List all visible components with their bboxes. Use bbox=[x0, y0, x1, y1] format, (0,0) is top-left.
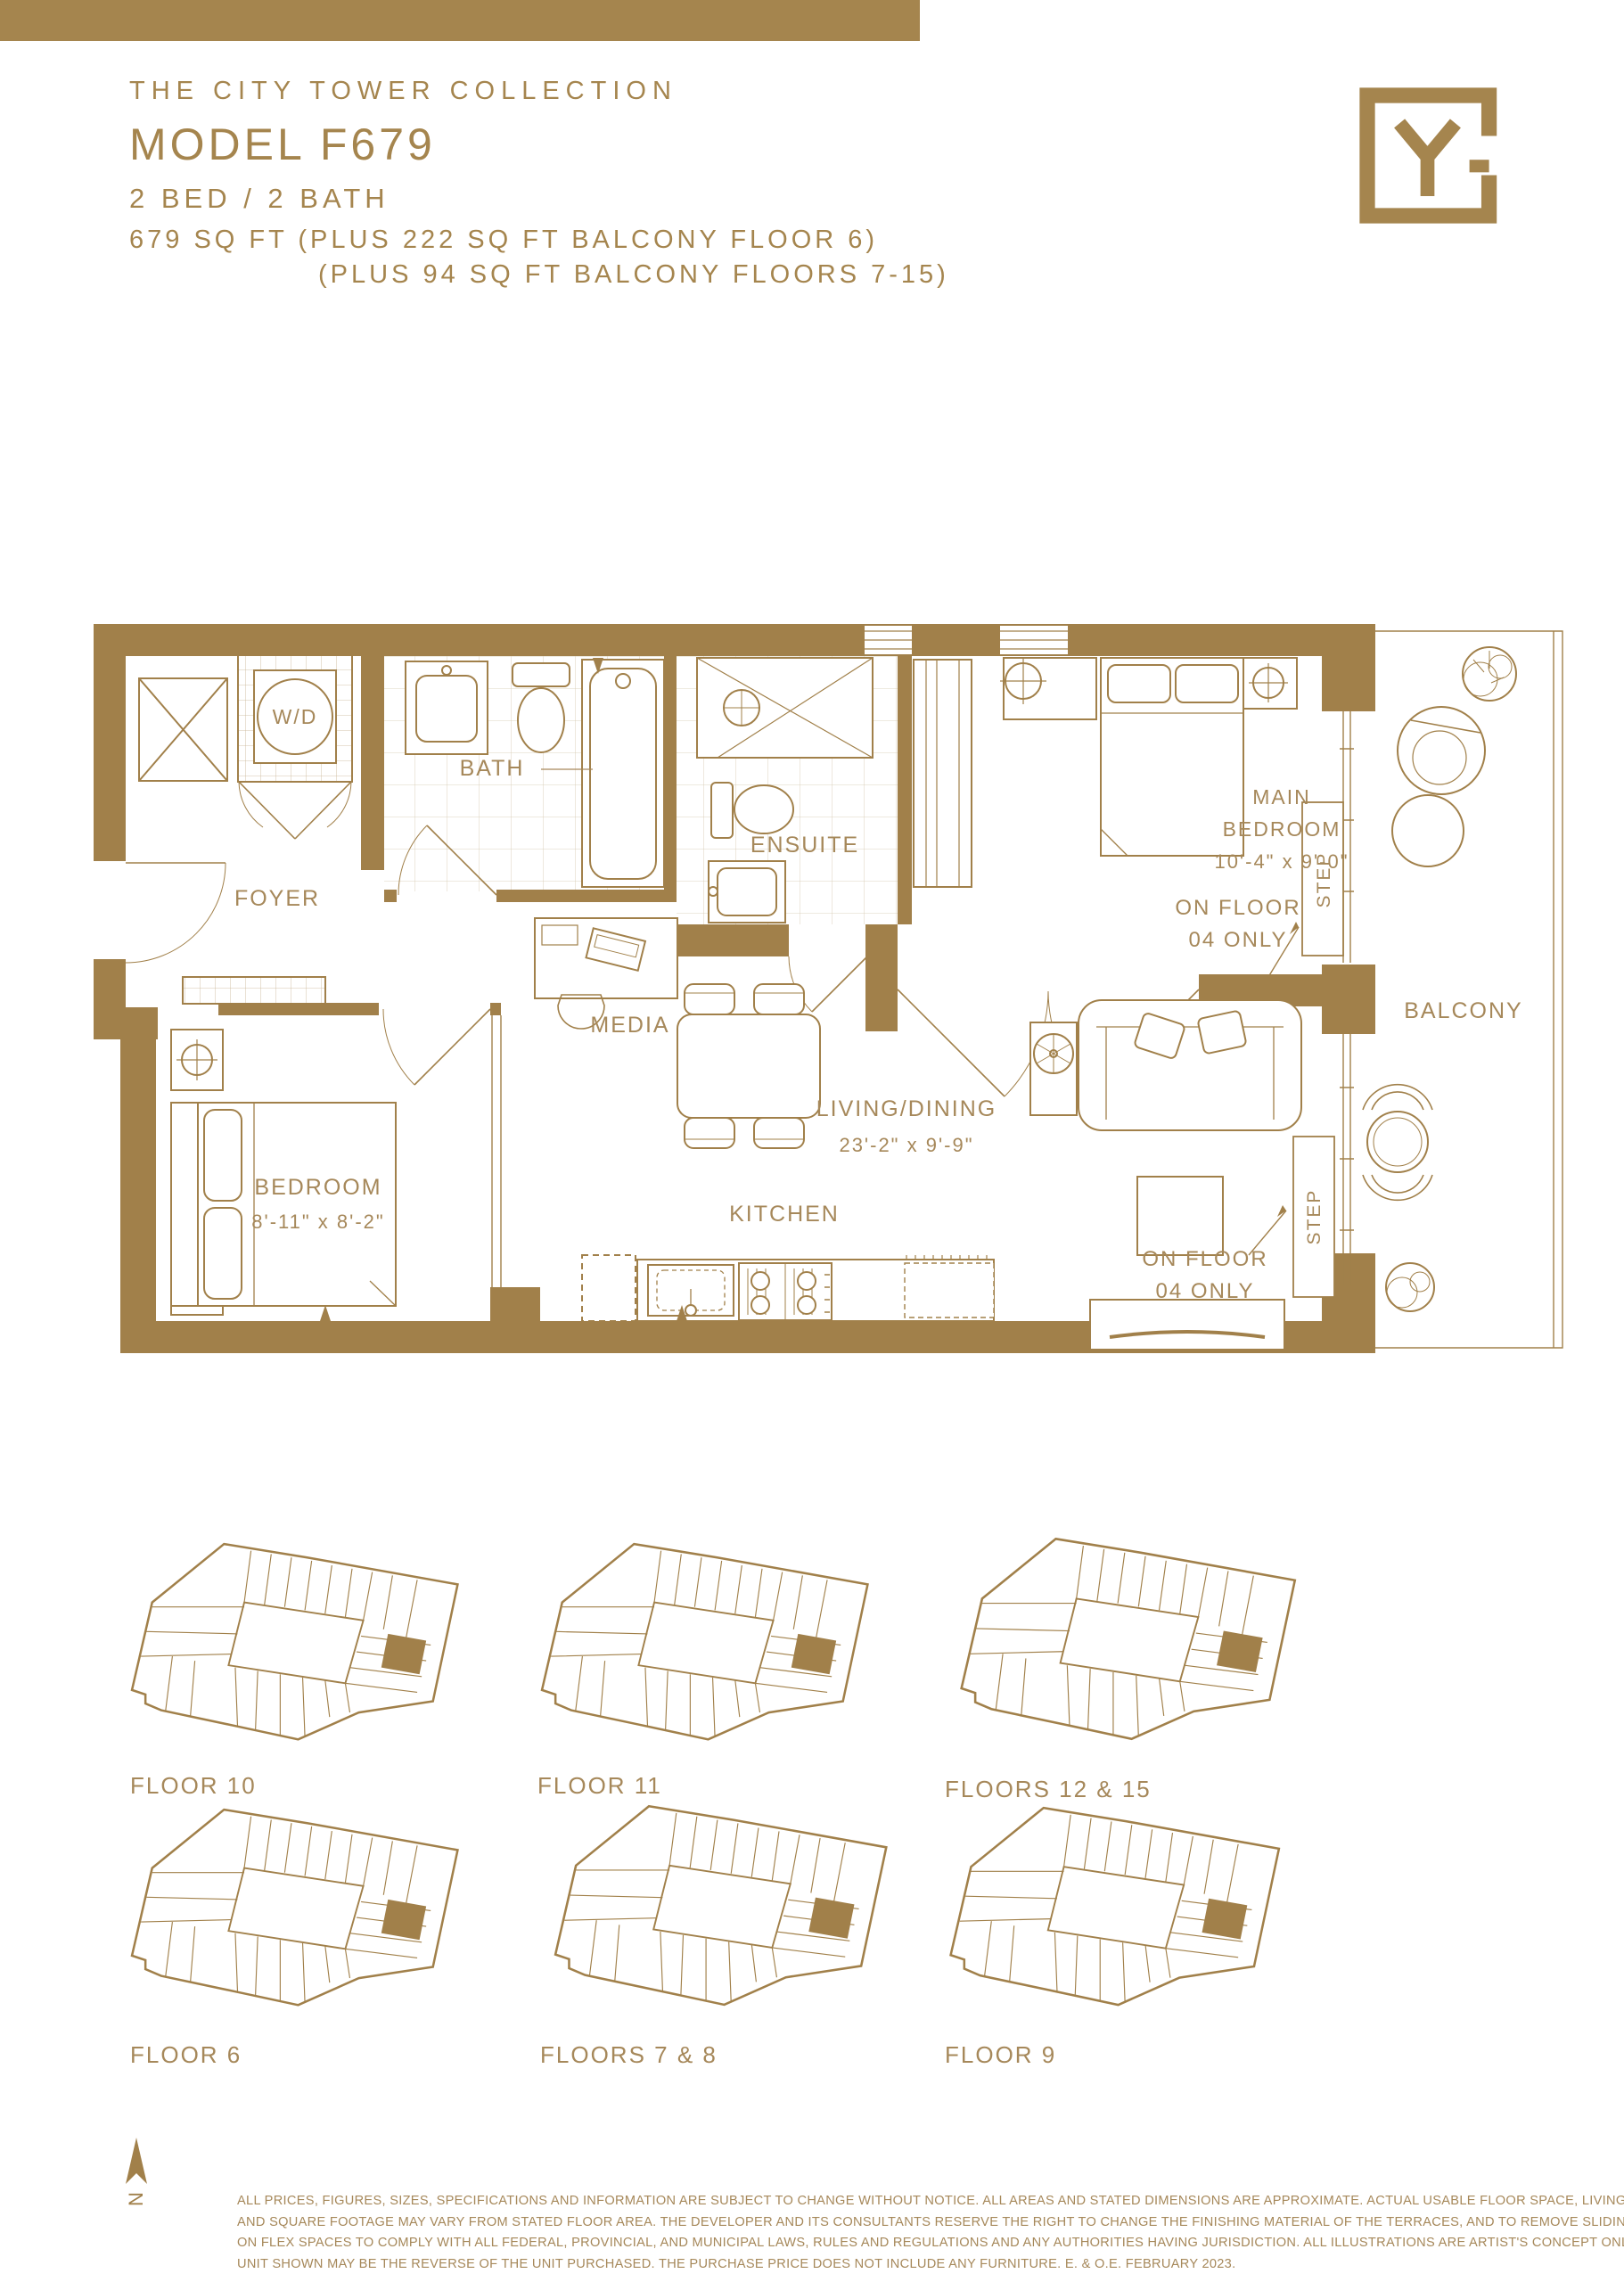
brand-logo bbox=[1357, 86, 1497, 230]
north-arrow: N bbox=[123, 2138, 150, 2222]
bedroom-furniture bbox=[171, 977, 490, 1315]
keyplan-label: FLOOR 11 bbox=[537, 1772, 662, 1800]
disclaimer-line: AND SQUARE FOOTAGE MAY VARY FROM STATED … bbox=[237, 2212, 1547, 2234]
main-bedroom-label-1: MAIN bbox=[1252, 785, 1311, 809]
bedroom-label: BEDROOM bbox=[254, 1175, 381, 1200]
header-text-block: THE CITY TOWER COLLECTION MODEL F679 2 B… bbox=[129, 77, 949, 290]
dining-set bbox=[677, 984, 820, 1148]
keyplan-drawing bbox=[920, 1530, 1339, 1760]
living-dining-dims: 23'-2" x 9'-9" bbox=[839, 1134, 973, 1156]
ensuite-label: ENSUITE bbox=[750, 833, 859, 858]
main-bedroom-label-2: BEDROOM bbox=[1223, 817, 1341, 841]
bed-bath-spec: 2 BED / 2 BATH bbox=[129, 183, 949, 215]
bath-label: BATH bbox=[460, 756, 525, 781]
foyer-label: FOYER bbox=[234, 886, 320, 911]
north-letter: N bbox=[125, 2192, 147, 2206]
disclaimer-line: ALL PRICES, FIGURES, SIZES, SPECIFICATIO… bbox=[237, 2191, 1547, 2212]
balcony-furniture bbox=[1363, 647, 1516, 1311]
keyplan-floor-11: FLOOR 11 bbox=[528, 1535, 884, 1764]
disclaimer: ALL PRICES, FIGURES, SIZES, SPECIFICATIO… bbox=[237, 2191, 1547, 2275]
step-upper-label: STEP bbox=[1314, 852, 1334, 908]
on-floor-lower-1: ON FLOOR bbox=[1142, 1247, 1267, 1271]
living-dining-label: LIVING/DINING bbox=[816, 1096, 997, 1121]
floorplan-svg: W/D BATH FOYER ENSUITE MEDIA KITCHEN MAI… bbox=[94, 624, 1573, 1380]
keyplan-drawing bbox=[920, 1799, 1312, 2025]
on-floor-upper-2: 04 ONLY bbox=[1189, 928, 1288, 952]
floorplan-drawing: W/D BATH FOYER ENSUITE MEDIA KITCHEN MAI… bbox=[94, 624, 1573, 1384]
keyplan-label: FLOOR 9 bbox=[945, 2041, 1056, 2069]
header-gold-bar bbox=[0, 0, 920, 41]
keyplan-floor-10: FLOOR 10 bbox=[118, 1535, 474, 1764]
bedroom-dims: 8'-11" x 8'-2" bbox=[251, 1211, 384, 1233]
keyplan-label: FLOOR 10 bbox=[130, 1772, 257, 1800]
disclaimer-line: UNIT SHOWN MAY BE THE REVERSE OF THE UNI… bbox=[237, 2254, 1547, 2276]
model-title: MODEL F679 bbox=[129, 119, 949, 170]
media-label: MEDIA bbox=[590, 1013, 669, 1038]
step-lower-label: STEP bbox=[1304, 1189, 1325, 1245]
y-square-logo-icon bbox=[1357, 86, 1497, 226]
keyplan-floors-7-8: FLOORS 7 & 8 bbox=[521, 1797, 923, 2030]
disclaimer-line: ON FLEX SPACES TO COMPLY WITH ALL FEDERA… bbox=[237, 2233, 1547, 2254]
keyplan-drawing bbox=[118, 1535, 474, 1760]
area-line-2: (PLUS 94 SQ FT BALCONY FLOORS 7-15) bbox=[129, 260, 949, 290]
keyplan-floor-6: FLOOR 6 bbox=[118, 1801, 474, 2030]
keyplan-drawing bbox=[118, 1801, 474, 2025]
entry-door bbox=[126, 863, 226, 963]
collection-title: THE CITY TOWER COLLECTION bbox=[129, 77, 949, 106]
wd-label: W/D bbox=[273, 705, 318, 728]
keyplan-floors-12-15: FLOORS 12 & 15 bbox=[920, 1530, 1339, 1764]
keyplan-label: FLOOR 6 bbox=[130, 2041, 242, 2069]
keyplan-floor-9: FLOOR 9 bbox=[920, 1799, 1312, 2030]
kitchen-label: KITCHEN bbox=[729, 1202, 840, 1227]
balcony-label: BALCONY bbox=[1404, 998, 1522, 1023]
foyer-fixtures bbox=[139, 655, 352, 839]
on-floor-lower-2: 04 ONLY bbox=[1156, 1279, 1255, 1303]
keyplan-drawing bbox=[528, 1535, 884, 1760]
keyplan-label: FLOORS 7 & 8 bbox=[540, 2041, 718, 2069]
north-arrow-icon: N bbox=[123, 2138, 150, 2218]
kitchen-fixtures bbox=[582, 1255, 994, 1321]
keyplan-drawing bbox=[521, 1797, 923, 2025]
on-floor-upper-1: ON FLOOR bbox=[1175, 896, 1300, 920]
area-line-1: 679 SQ FT (PLUS 222 SQ FT BALCONY FLOOR … bbox=[129, 226, 949, 255]
